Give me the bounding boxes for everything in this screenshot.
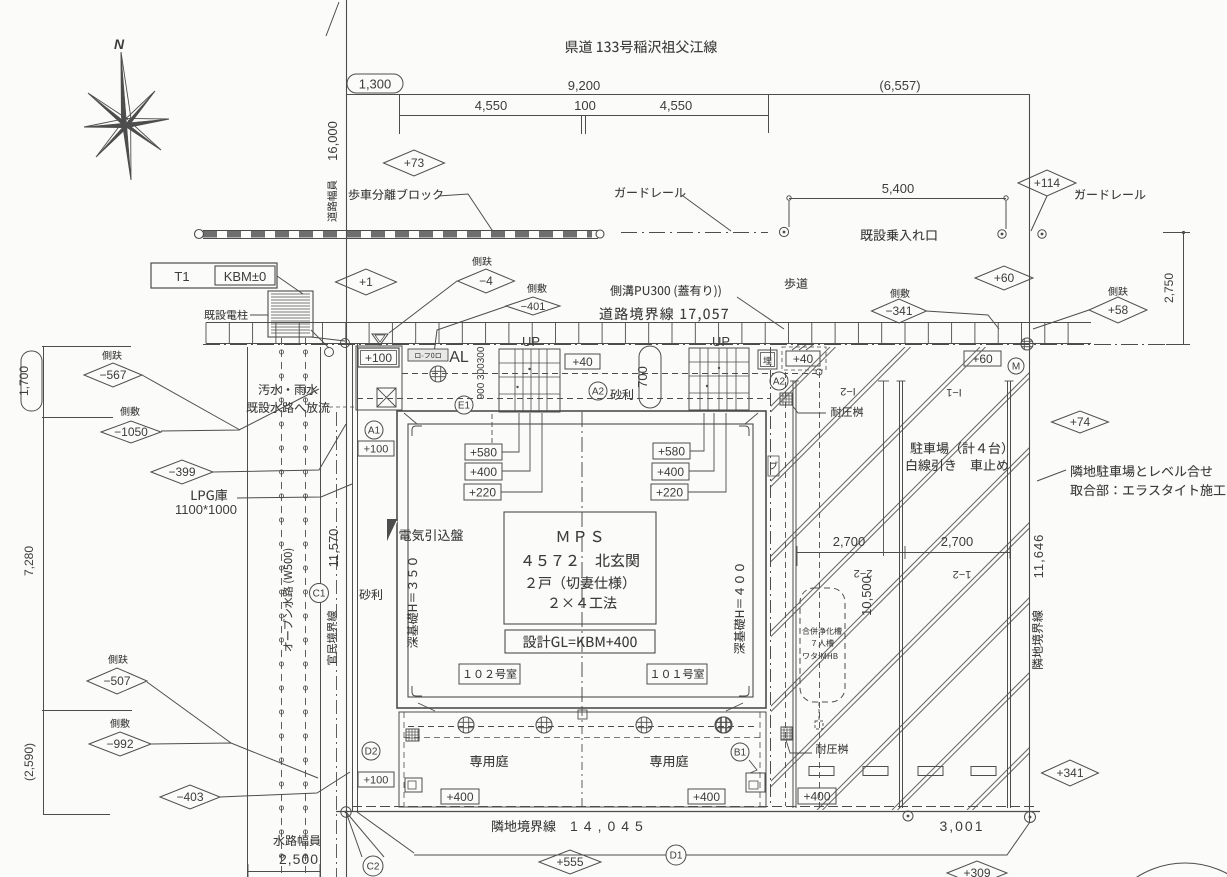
svg-text:+220: +220 [656, 485, 683, 499]
svg-text:2,700: 2,700 [833, 534, 866, 549]
svg-text:−1050: −1050 [114, 425, 148, 439]
svg-text:1−2: 1−2 [953, 568, 972, 580]
svg-text:I−1: I−1 [946, 386, 962, 398]
svg-text:1100*1000: 1100*1000 [175, 502, 237, 517]
svg-text:+580: +580 [658, 444, 685, 458]
svg-text:−401: −401 [521, 301, 546, 313]
svg-text:−399: −399 [168, 465, 195, 479]
svg-text:+580: +580 [470, 445, 497, 459]
svg-text:10,500: 10,500 [859, 576, 874, 616]
svg-text:N: N [114, 36, 125, 52]
svg-text:2,700: 2,700 [941, 534, 974, 549]
svg-text:+400: +400 [693, 790, 720, 804]
svg-text:+555: +555 [556, 855, 583, 869]
svg-text:+400: +400 [446, 790, 473, 804]
svg-text:M: M [1012, 362, 1020, 373]
svg-text:2,500: 2,500 [279, 851, 319, 867]
svg-text:1,300: 1,300 [359, 77, 392, 92]
svg-text:AL: AL [449, 349, 469, 366]
svg-text:7,280: 7,280 [22, 546, 36, 576]
svg-text:−341: −341 [885, 304, 912, 318]
svg-text:A1: A1 [368, 426, 381, 437]
svg-text:+341: +341 [1056, 766, 1083, 780]
svg-text:−4: −4 [479, 274, 493, 288]
svg-text:+220: +220 [469, 485, 496, 499]
svg-text:9,200: 9,200 [568, 78, 601, 93]
svg-text:UP: UP [522, 334, 540, 349]
svg-text:+100: +100 [364, 774, 389, 786]
svg-text:+400: +400 [657, 465, 684, 479]
svg-text:+1: +1 [359, 275, 373, 289]
svg-text:5,400: 5,400 [882, 181, 915, 196]
svg-text:−567: −567 [99, 368, 126, 382]
svg-text:KBM±0: KBM±0 [224, 269, 267, 284]
svg-text:A2: A2 [592, 387, 605, 398]
svg-text:(6,557): (6,557) [879, 78, 920, 93]
svg-text:+60: +60 [994, 271, 1015, 285]
svg-text:+100: +100 [365, 351, 392, 365]
svg-text:3,001: 3,001 [939, 818, 984, 834]
svg-text:D1: D1 [670, 851, 683, 862]
svg-text:4,550: 4,550 [660, 98, 693, 113]
svg-text:A2: A2 [773, 377, 786, 388]
svg-text:C2: C2 [367, 862, 380, 873]
svg-text:E1: E1 [458, 401, 471, 412]
svg-text:14,045: 14,045 [570, 818, 649, 834]
svg-text:(2,590): (2,590) [22, 743, 36, 781]
svg-text:+100: +100 [364, 443, 389, 455]
svg-text:2,750: 2,750 [1162, 273, 1176, 303]
svg-text:16,000: 16,000 [325, 121, 340, 161]
svg-text:100: 100 [574, 98, 596, 113]
svg-text:+58: +58 [1108, 303, 1129, 317]
svg-text:D2: D2 [365, 747, 378, 758]
svg-text:−403: −403 [176, 790, 203, 804]
svg-text:+40: +40 [572, 355, 593, 369]
svg-text:B1: B1 [734, 748, 747, 759]
svg-text:T1: T1 [174, 269, 189, 284]
svg-text:+73: +73 [404, 156, 425, 170]
svg-text:+60: +60 [972, 352, 993, 366]
svg-text:+309: +309 [963, 866, 990, 877]
svg-text:1,700: 1,700 [17, 366, 31, 396]
svg-text:11,646: 11,646 [1031, 534, 1046, 579]
svg-text:+40: +40 [793, 352, 814, 366]
svg-text:I−2: I−2 [840, 385, 856, 397]
svg-text:UP: UP [712, 334, 730, 349]
svg-text:C1: C1 [313, 589, 326, 600]
svg-text:+114: +114 [1034, 176, 1060, 190]
svg-text:11,570: 11,570 [326, 529, 341, 568]
svg-text:4,550: 4,550 [475, 98, 508, 113]
svg-text:−507: −507 [103, 674, 130, 688]
svg-text:+400: +400 [803, 789, 830, 803]
svg-text:+400: +400 [470, 465, 497, 479]
svg-text:900 300300: 900 300300 [476, 346, 487, 399]
svg-text:−992: −992 [106, 737, 133, 751]
svg-text:700: 700 [635, 366, 650, 388]
svg-text:+74: +74 [1070, 415, 1091, 429]
